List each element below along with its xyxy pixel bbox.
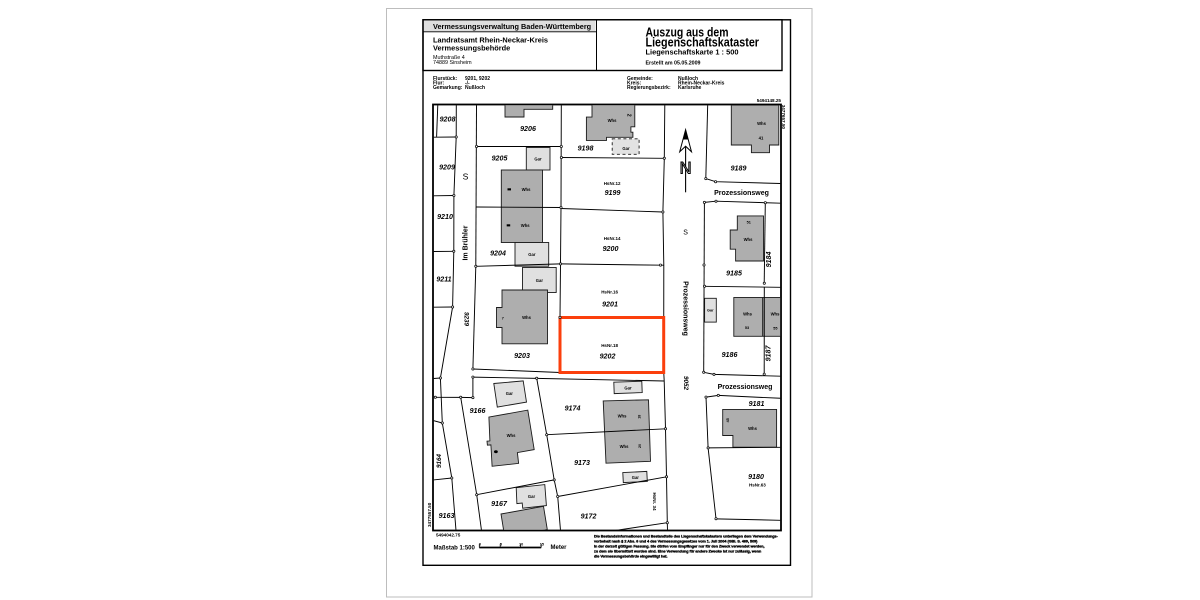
svg-text:9206: 9206 [520, 125, 536, 133]
svg-text:10: 10 [519, 543, 523, 547]
svg-text:9181: 9181 [749, 400, 765, 408]
svg-text:N: N [680, 159, 692, 177]
svg-text:Prozessionsweg: Prozessionsweg [682, 281, 689, 336]
svg-text:9164: 9164 [436, 454, 443, 469]
svg-text:Erstellt am 05.05.2009: Erstellt am 05.05.2009 [646, 60, 702, 66]
svg-text:Gar: Gar [506, 391, 514, 396]
svg-text:9189: 9189 [731, 165, 747, 173]
svg-text:9174: 9174 [565, 405, 581, 413]
svg-text:Whs: Whs [522, 315, 532, 320]
svg-text:9173: 9173 [574, 459, 590, 467]
svg-text:20: 20 [638, 444, 642, 448]
svg-text:9163: 9163 [439, 512, 455, 520]
svg-text:9167: 9167 [491, 500, 508, 508]
svg-text:HsNr. 34: HsNr. 34 [652, 492, 657, 511]
svg-text:9201: 9201 [602, 301, 618, 309]
svg-text:18: 18 [638, 415, 642, 419]
svg-text:55: 55 [773, 326, 777, 330]
svg-text:51: 51 [747, 220, 751, 224]
svg-text:Regierungsbezirk:: Regierungsbezirk: [627, 85, 671, 91]
svg-text:Meter: Meter [551, 545, 568, 551]
svg-text:Whs: Whs [743, 311, 753, 316]
svg-text:5494042.75: 5494042.75 [436, 533, 461, 538]
svg-text:S: S [683, 229, 688, 236]
svg-text:9204: 9204 [490, 250, 506, 258]
svg-text:Gar: Gar [534, 156, 542, 161]
svg-text:Whs: Whs [748, 426, 758, 431]
svg-text:Whs: Whs [771, 311, 781, 316]
svg-text:9239: 9239 [463, 312, 470, 327]
svg-text:HsNr.16: HsNr.16 [601, 290, 618, 295]
svg-text:0: 0 [479, 543, 481, 547]
svg-text:9200: 9200 [603, 245, 619, 253]
svg-text:Vermessungsverwaltung Baden-Wü: Vermessungsverwaltung Baden-Württemberg [433, 22, 591, 31]
svg-text:HsNr.63: HsNr.63 [749, 483, 766, 488]
svg-text:Prozessionsweg: Prozessionsweg [718, 384, 773, 391]
svg-text:9185: 9185 [726, 270, 743, 278]
svg-text:9187: 9187 [765, 345, 773, 362]
svg-text:45: 45 [726, 418, 730, 422]
svg-text:9184: 9184 [765, 252, 773, 268]
svg-text:Gar: Gar [632, 475, 640, 480]
svg-text:Karlsruhe: Karlsruhe [678, 85, 702, 91]
svg-text:Gar: Gar [624, 386, 632, 391]
svg-text:HsNr.12: HsNr.12 [604, 181, 621, 186]
svg-text:Im Brühler: Im Brühler [462, 225, 469, 260]
svg-text:15: 15 [540, 543, 544, 547]
svg-text:9199: 9199 [605, 189, 621, 197]
svg-text:9203: 9203 [514, 352, 530, 360]
svg-text:Gar: Gar [707, 309, 714, 313]
svg-text:9198: 9198 [578, 145, 594, 153]
svg-text:Die Bestandsinformationen und: Die Bestandsinformationen und Bestandtei… [594, 534, 779, 538]
svg-text:9211: 9211 [436, 276, 451, 284]
svg-text:Nußloch: Nußloch [465, 85, 485, 91]
svg-text:5494148.25: 5494148.25 [757, 98, 782, 103]
svg-text:zu dem sie übermittelt worden: zu dem sie übermittelt worden sind. Eine… [594, 550, 762, 554]
svg-text:3477557.50: 3477557.50 [427, 502, 432, 527]
svg-text:9180: 9180 [748, 473, 764, 481]
svg-text:9052: 9052 [682, 376, 689, 391]
svg-text:HsNr.18: HsNr.18 [601, 343, 618, 348]
svg-text:vorbehalt nach § 2 Abs. 6 und: vorbehalt nach § 2 Abs. 6 und 4 des Verm… [594, 539, 758, 543]
svg-text:Whs: Whs [507, 433, 517, 438]
svg-text:Vermessungsbehörde: Vermessungsbehörde [433, 43, 510, 52]
svg-text:Whs: Whs [618, 413, 628, 418]
svg-text:9210: 9210 [437, 213, 453, 221]
svg-text:Gar: Gar [536, 278, 544, 283]
svg-text:Gemarkung:: Gemarkung: [433, 85, 463, 91]
svg-text:die Vermessungsbehörde eingewi: die Vermessungsbehörde eingewilligt hat. [594, 555, 668, 559]
svg-text:Whs: Whs [521, 223, 531, 228]
svg-text:Whs: Whs [522, 187, 532, 192]
svg-text:Gar: Gar [622, 146, 630, 151]
svg-text:9209: 9209 [439, 164, 455, 172]
svg-text:2: 2 [626, 114, 632, 117]
svg-text:Whs: Whs [620, 444, 630, 449]
svg-text:Prozessionsweg: Prozessionsweg [714, 190, 769, 197]
svg-text:7: 7 [502, 316, 504, 320]
svg-text:53: 53 [745, 326, 749, 330]
svg-text:Gar: Gar [528, 494, 536, 499]
svg-text:Whs: Whs [757, 121, 767, 126]
svg-text:Whs: Whs [744, 237, 754, 242]
svg-text:Maßstab 1:500: Maßstab 1:500 [434, 546, 476, 552]
svg-text:9205: 9205 [492, 155, 509, 163]
svg-text:9202: 9202 [600, 353, 616, 361]
svg-text:S: S [463, 172, 469, 182]
svg-text:Gar: Gar [528, 252, 536, 257]
svg-text:Whs: Whs [608, 118, 618, 123]
svg-text:HsNr.14: HsNr.14 [604, 236, 621, 241]
svg-text:9166: 9166 [470, 407, 486, 415]
svg-text:9172: 9172 [581, 513, 597, 521]
svg-text:in der derzeit gültigen Fassun: in der derzeit gültigen Fassung. Sie dür… [594, 544, 764, 548]
svg-text:74889 Sinsheim: 74889 Sinsheim [433, 60, 472, 66]
svg-text:9208: 9208 [440, 116, 456, 124]
svg-text:41: 41 [759, 136, 764, 141]
svg-text:9186: 9186 [722, 351, 738, 359]
svg-text:Liegenschaftskarte 1 : 500: Liegenschaftskarte 1 : 500 [646, 48, 739, 57]
svg-text:5: 5 [500, 543, 502, 547]
